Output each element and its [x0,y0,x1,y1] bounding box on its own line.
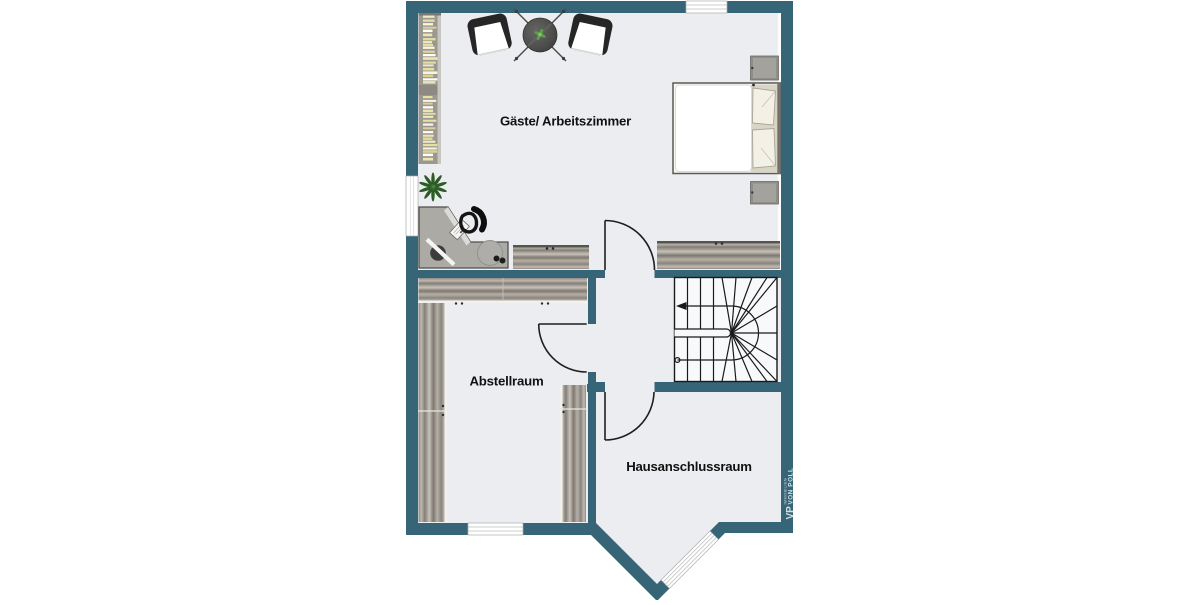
svg-text:Gäste/ Arbeitszimmer: Gäste/ Arbeitszimmer [500,114,631,129]
svg-text:VON POLL: VON POLL [787,468,794,505]
svg-text:IMMOBILIEN: IMMOBILIEN [782,478,787,504]
svg-text:Hausanschlussraum: Hausanschlussraum [626,459,752,474]
svg-text:Abstellraum: Abstellraum [469,374,543,389]
svg-text:VP: VP [785,506,796,520]
